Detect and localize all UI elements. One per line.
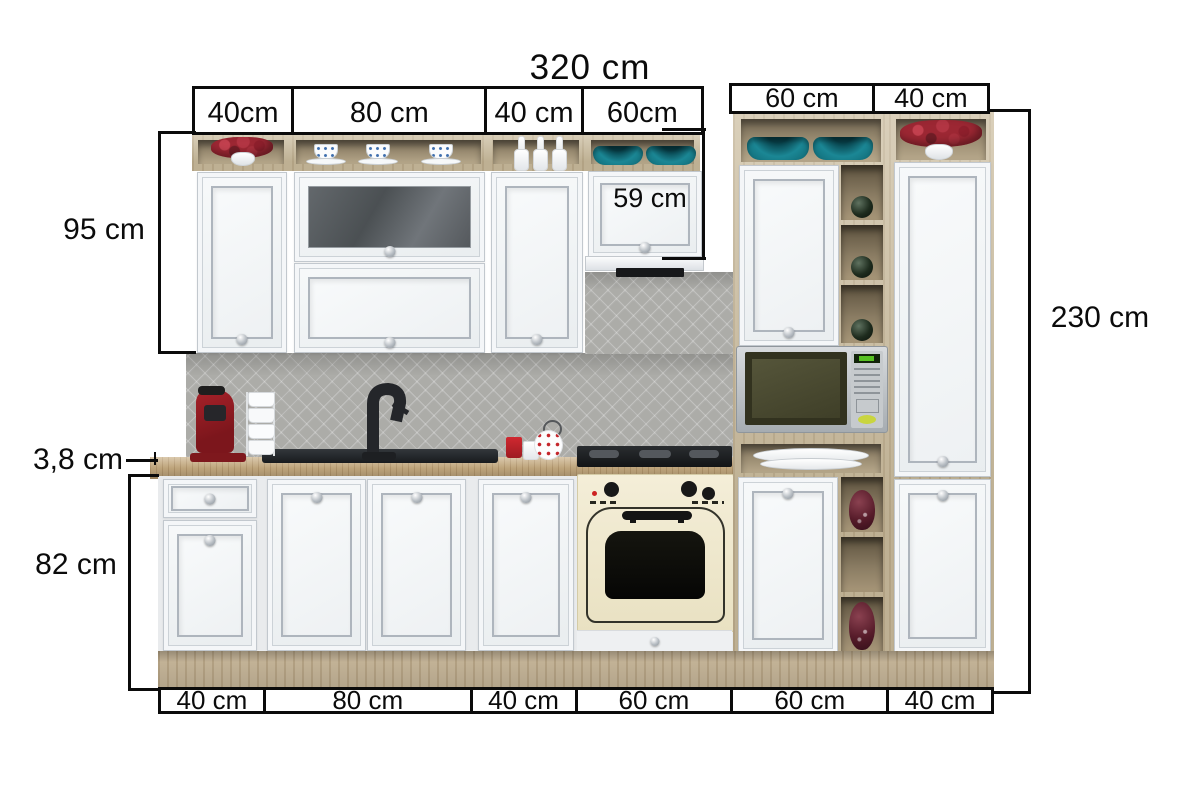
- wine-cubby: [841, 165, 883, 220]
- coffee-machine-spout: [204, 405, 226, 421]
- dim-segment: 40 cm: [889, 690, 991, 711]
- coffee-machine-body: [196, 390, 234, 453]
- door-panel: [505, 186, 569, 339]
- wine-bottle: [851, 256, 873, 278]
- dim-segment: 80 cm: [266, 690, 473, 711]
- door-knob: [384, 337, 395, 348]
- wall-cabinet-door-40: [197, 172, 287, 353]
- stacked-cup: [248, 408, 275, 423]
- door-knob: [532, 334, 543, 345]
- base-height-label: 82 cm: [24, 549, 128, 581]
- microwave-button-rect: [856, 399, 879, 413]
- hob-burner: [639, 450, 671, 458]
- white-plate: [760, 458, 862, 470]
- bracket-line: [158, 131, 196, 134]
- tall40-upper-door: [894, 162, 991, 477]
- kitchen-dimension-diagram: 320 cm 40cm 80 cm 40 cm 60cm 60 cm 40 cm…: [0, 0, 1190, 800]
- saucer: [306, 158, 346, 165]
- stacked-cup: [248, 392, 275, 407]
- door-knob: [205, 535, 216, 546]
- tall60-upper-door: [739, 165, 839, 346]
- dim-segment: 40 cm: [875, 86, 987, 111]
- door-knob: [311, 492, 322, 503]
- base-cabinet-door-80b: [367, 479, 466, 651]
- total-width-label: 320 cm: [440, 50, 740, 87]
- bracket-line: [158, 351, 196, 354]
- door-panel: [753, 179, 825, 332]
- backsplash-tiles-hood: [585, 272, 733, 354]
- wall-cabinet-door-40b: [491, 172, 583, 353]
- dim-segment: 60 cm: [732, 86, 875, 111]
- door-knob: [237, 334, 248, 345]
- saucer: [358, 158, 398, 165]
- red-mug: [506, 437, 522, 458]
- bracket-line: [987, 109, 1031, 112]
- oven-handle-foot: [678, 518, 684, 523]
- wine-bottle: [851, 196, 873, 218]
- flower-vase: [231, 152, 255, 166]
- bracket-line: [128, 688, 161, 691]
- oven-handle-foot: [630, 518, 636, 523]
- dim-label: 40 cm: [495, 97, 574, 130]
- dim-segment: 40 cm: [473, 690, 578, 711]
- dim-segment: 40 cm: [487, 89, 583, 132]
- coffee-machine-base: [190, 453, 246, 462]
- strip-knob: [650, 637, 659, 646]
- countertop-thickness-label: 3,8 cm: [26, 444, 130, 476]
- dim-label: 40 cm: [488, 685, 559, 716]
- dim-label: 80 cm: [332, 685, 403, 716]
- oven-knob: [681, 481, 697, 497]
- teacup: [314, 144, 338, 159]
- door-knob: [640, 242, 651, 253]
- oven: [577, 474, 734, 632]
- microwave-start-button: [858, 415, 876, 424]
- dim-label: 40cm: [208, 97, 279, 130]
- bracket-line: [992, 691, 1031, 694]
- stacked-cup: [248, 440, 275, 455]
- hob-burner: [589, 450, 619, 458]
- faucet: [348, 380, 422, 460]
- wine-cubby: [841, 225, 883, 280]
- oven-knob: [604, 482, 619, 497]
- bracket-line: [662, 128, 706, 131]
- bottle-body: [514, 149, 529, 171]
- teacup-with-saucer: [357, 144, 397, 164]
- door-panel: [908, 493, 977, 639]
- oven-door-window: [605, 531, 705, 599]
- door-knob: [937, 490, 948, 501]
- microwave: [736, 346, 888, 433]
- saucer: [421, 158, 461, 165]
- teacup: [429, 144, 453, 159]
- dim-segment: 60 cm: [733, 690, 889, 711]
- gas-hob: [577, 446, 732, 467]
- burgundy-vase: [849, 602, 875, 650]
- top-dimension-bar: 40cm 80 cm 40 cm 60cm: [192, 86, 704, 135]
- wall-height-label: 95 cm: [54, 214, 154, 246]
- oven-vent-dashes: [692, 501, 724, 504]
- top-right-dimension-bar: 60 cm 40 cm: [729, 83, 990, 114]
- microwave-window-glass: [752, 359, 840, 418]
- teacup-with-saucer: [420, 144, 460, 164]
- coffee-machine-lid: [198, 386, 225, 395]
- white-bottle: [552, 136, 565, 169]
- microwave-display: [854, 354, 880, 363]
- open-cubby: [841, 477, 883, 532]
- dim-label: 40 cm: [177, 685, 248, 716]
- dim-label: 40 cm: [894, 83, 968, 114]
- bottle-body: [552, 149, 567, 171]
- teapot: [534, 430, 563, 460]
- dim-label: 60 cm: [619, 685, 690, 716]
- teal-bowl: [646, 146, 696, 165]
- dim-segment: 40cm: [195, 89, 294, 132]
- oven-indicator-light: [592, 491, 597, 496]
- microwave-window: [745, 352, 847, 425]
- dim-segment: 40 cm: [161, 690, 266, 711]
- base-cabinet-door-80a: [267, 479, 366, 651]
- oven-lower-strip: [577, 630, 732, 653]
- leader-tick: [154, 452, 156, 465]
- coffee-machine: [190, 386, 246, 462]
- dim-label: 60 cm: [765, 83, 839, 114]
- teacup-with-saucer: [305, 144, 345, 164]
- door-panel: [211, 186, 273, 339]
- dim-label: 80 cm: [350, 97, 429, 130]
- bottle-body: [533, 149, 548, 171]
- drawer-knob: [205, 493, 216, 504]
- flower-bouquet: [900, 120, 982, 147]
- plinth: [158, 651, 994, 688]
- door-panel: [381, 493, 452, 637]
- wall-cabinet-liftdoor-80: [294, 263, 485, 353]
- cooker-hood-vent: [616, 268, 684, 277]
- door-knob: [384, 246, 395, 257]
- burgundy-vase: [849, 490, 875, 530]
- wine-bottle: [851, 319, 873, 341]
- microwave-control-panel: [851, 351, 883, 428]
- teal-bowl: [747, 137, 809, 160]
- door-knob: [784, 327, 795, 338]
- dim-segment: 60cm: [584, 89, 701, 132]
- base-cabinet-door-40: [163, 520, 257, 651]
- microwave-buttons: [854, 368, 880, 395]
- dim-label: 60cm: [607, 97, 678, 130]
- door-knob: [783, 488, 794, 499]
- oven-knob: [702, 487, 715, 500]
- open-cubby: [841, 537, 883, 592]
- bracket-line: [158, 131, 161, 354]
- bracket-line: [128, 474, 131, 691]
- bracket-line: [702, 128, 705, 260]
- door-knob: [521, 492, 532, 503]
- wine-cubby: [841, 285, 883, 343]
- dim-label: 40 cm: [905, 685, 976, 716]
- open-cubby: [841, 597, 883, 652]
- bottom-dimension-bar: 40 cm 80 cm 40 cm 60 cm 60 cm 40 cm: [158, 687, 994, 714]
- cup-stack-rack: [246, 390, 276, 458]
- teacup: [366, 144, 390, 159]
- bracket-line: [128, 474, 159, 477]
- total-height-label: 230 cm: [1040, 302, 1160, 334]
- dim-segment: 60 cm: [578, 690, 734, 711]
- glass-pane: [308, 186, 471, 248]
- flower-vase: [925, 144, 953, 160]
- door-knob: [937, 456, 948, 467]
- tall60-lower-door: [738, 477, 838, 654]
- bracket-line: [662, 257, 706, 260]
- microwave-display-digits: [859, 356, 874, 361]
- oven-vent-dashes: [590, 501, 618, 504]
- door-panel: [308, 277, 471, 339]
- teal-bowl: [593, 146, 643, 165]
- door-panel: [908, 176, 977, 463]
- teal-bowl: [813, 137, 873, 160]
- dim-label: 60 cm: [774, 685, 845, 716]
- hob-burner: [689, 450, 719, 458]
- dim-segment: 80 cm: [294, 89, 487, 132]
- door-panel: [492, 493, 560, 637]
- door-panel: [752, 491, 824, 640]
- door-panel: [281, 493, 352, 637]
- door-knob: [411, 492, 422, 503]
- hood-height-label: 59 cm: [600, 184, 700, 212]
- bracket-line: [1028, 109, 1031, 694]
- base-drawer-40: [163, 479, 257, 518]
- white-bottle: [533, 136, 546, 169]
- wall-cabinet-glass-door-80: [294, 172, 485, 262]
- stacked-cup: [248, 424, 275, 439]
- tall40-lower-door: [894, 479, 991, 653]
- door-panel: [177, 534, 243, 637]
- white-bottle: [514, 136, 527, 169]
- base-cabinet-door-40b: [478, 479, 574, 651]
